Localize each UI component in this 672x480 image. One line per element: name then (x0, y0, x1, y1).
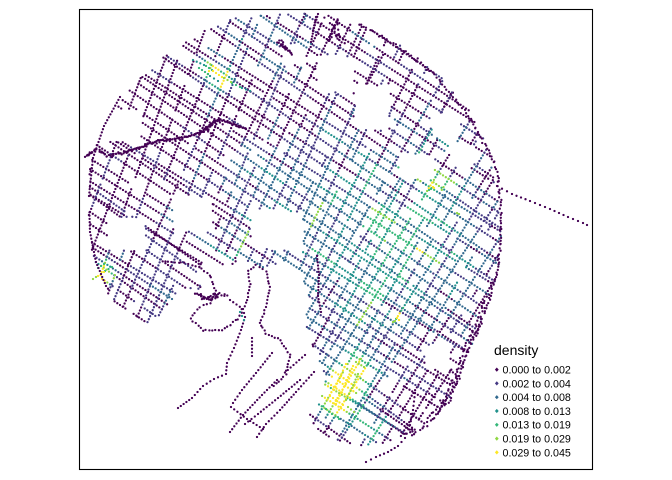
svg-text:0.004 to 0.008: 0.004 to 0.008 (503, 392, 571, 404)
svg-text:0.002 to 0.004: 0.002 to 0.004 (503, 378, 571, 390)
svg-text:density: density (494, 342, 538, 358)
svg-text:0.008 to 0.013: 0.008 to 0.013 (503, 406, 571, 418)
svg-text:0.029 to 0.045: 0.029 to 0.045 (503, 447, 571, 459)
svg-text:0.013 to 0.019: 0.013 to 0.019 (503, 420, 571, 432)
svg-text:0.019 to 0.029: 0.019 to 0.029 (503, 434, 571, 446)
svg-text:0.000 to 0.002: 0.000 to 0.002 (503, 365, 571, 377)
